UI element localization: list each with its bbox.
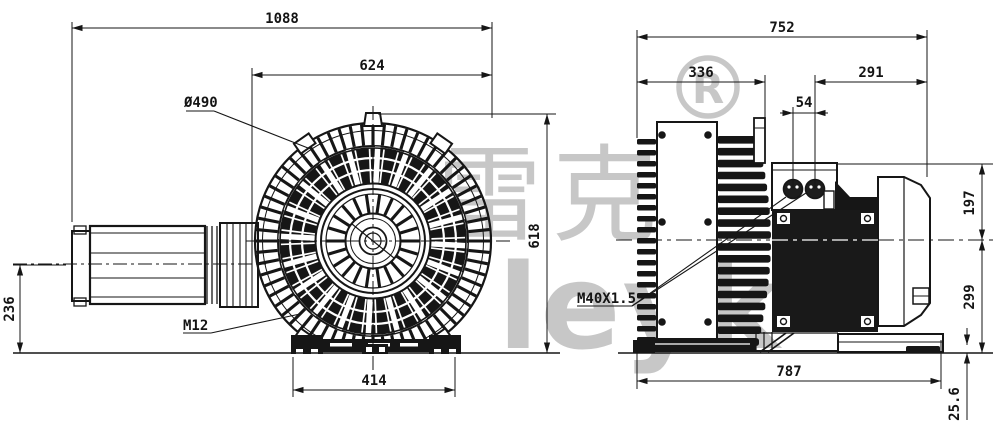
dim-overall-depth-label: 752 bbox=[769, 20, 794, 36]
dim-motor-length-label: 291 bbox=[858, 65, 883, 81]
dim-inlet-axis-height-label: 236 bbox=[2, 296, 18, 321]
dim-foot-spacing-label: 414 bbox=[361, 373, 386, 389]
side-view bbox=[616, 118, 993, 353]
dim-inlet-width-label: 624 bbox=[359, 58, 384, 74]
dim-top-to-axis-label: 197 bbox=[962, 190, 978, 215]
dim-foot-height-label: 25.6 bbox=[947, 387, 963, 421]
dim-impeller-diameter-label: Ø490 bbox=[183, 95, 218, 111]
dim-axis-to-base-label: 299 bbox=[962, 284, 978, 309]
dim-cable-gland-thread-label: M40X1.5 bbox=[577, 291, 636, 307]
dim-gland-offset-label: 54 bbox=[796, 95, 813, 111]
technical-drawing-canvas: 雷克 leyk R 1088 624 Ø490 618 236 M12 414 … bbox=[0, 0, 1000, 440]
dim-mounting-thread-label: M12 bbox=[183, 318, 208, 334]
dim-overall-width-label: 1088 bbox=[265, 11, 299, 27]
dim-base-length-label: 787 bbox=[776, 364, 801, 380]
blower-technical-drawing-page: 雷克 leyk R 1088 624 Ø490 618 236 M12 414 … bbox=[0, 0, 1000, 440]
dim-blower-depth-label: 336 bbox=[688, 65, 713, 81]
dim-overall-height-label: 618 bbox=[527, 223, 543, 248]
